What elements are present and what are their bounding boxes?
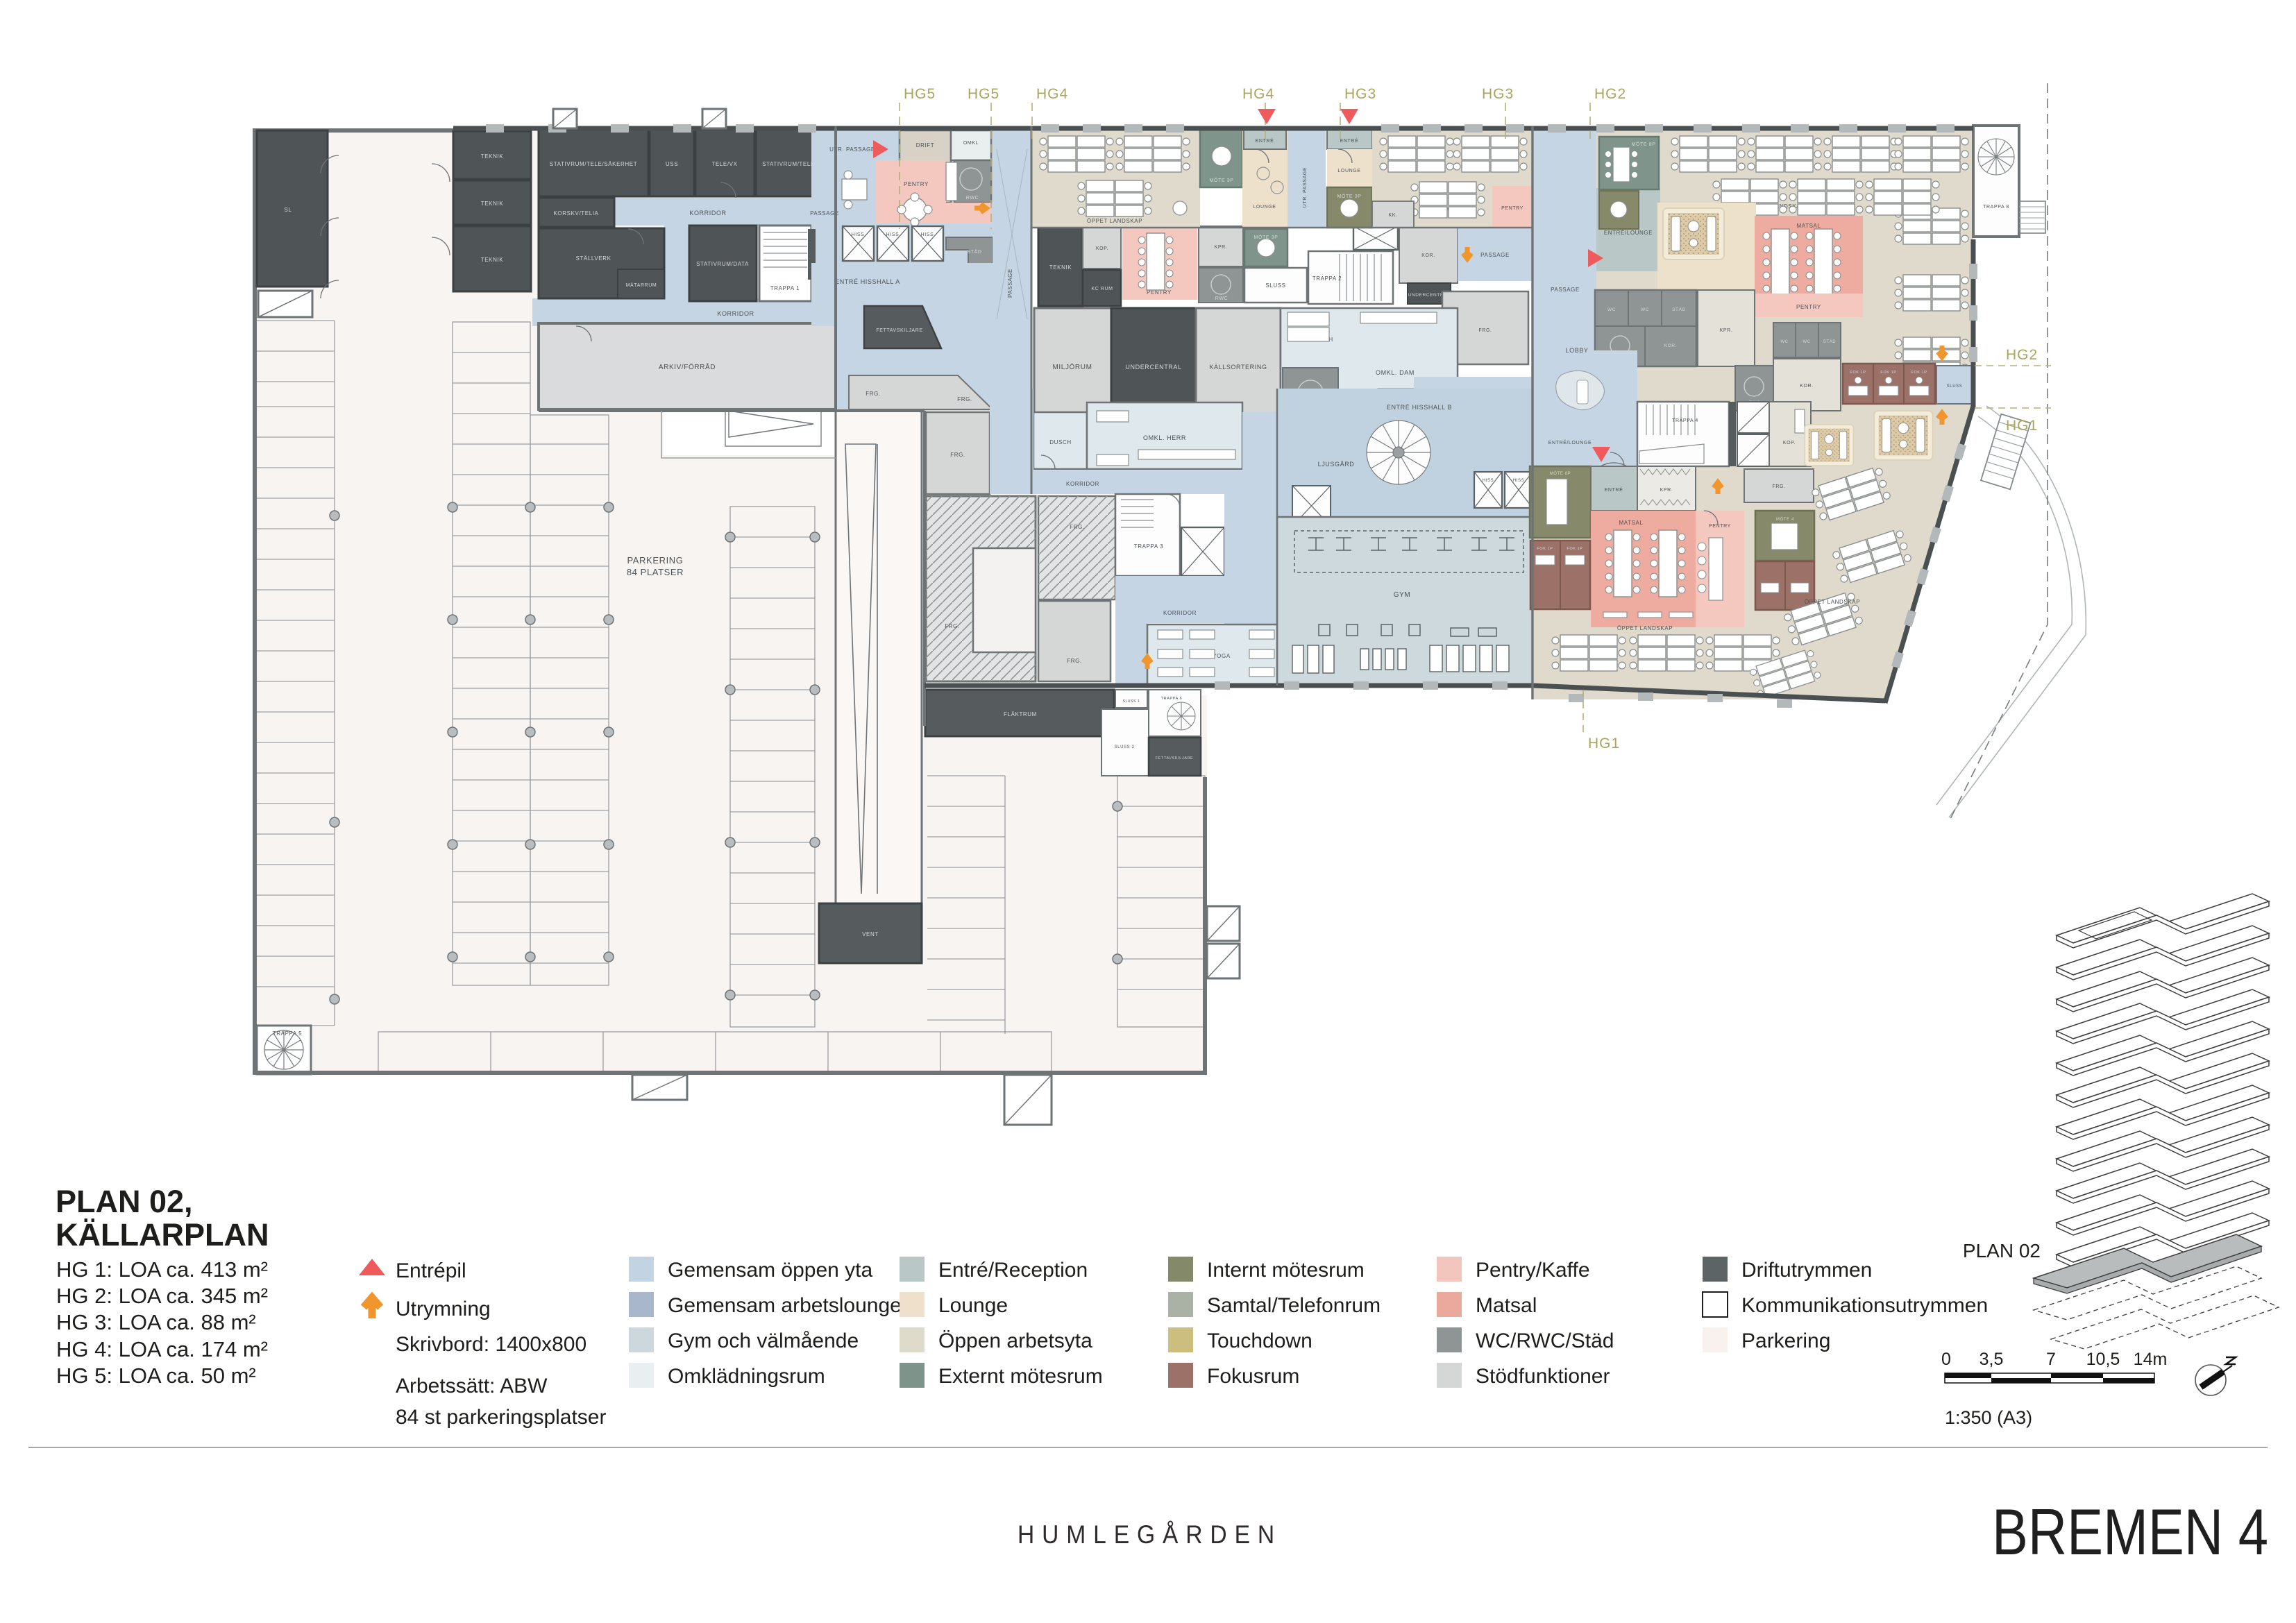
svg-text:OMKL. DAM: OMKL. DAM [1376, 369, 1415, 376]
svg-text:HG3: HG3 [1482, 86, 1514, 102]
svg-text:ENTRÉ HISSHALL B: ENTRÉ HISSHALL B [1387, 404, 1452, 411]
svg-text:USS: USS [666, 161, 678, 167]
svg-text:HISS: HISS [1513, 479, 1524, 483]
svg-text:Internt mötesrum: Internt mötesrum [1207, 1259, 1365, 1282]
svg-text:ENTRÉ/LOUNGE: ENTRÉ/LOUNGE [1548, 439, 1592, 445]
svg-text:KPR.: KPR. [1660, 488, 1673, 493]
svg-text:HG1: HG1 [1588, 736, 1620, 751]
svg-text:MÖTE 3P: MÖTE 3P [1337, 194, 1362, 199]
svg-text:OMKL. HERR: OMKL. HERR [1143, 434, 1186, 441]
svg-text:SLUSS: SLUSS [1265, 282, 1285, 289]
svg-text:ENTRÉ: ENTRÉ [1605, 486, 1623, 493]
svg-text:ENTRÉ HISSHALL A: ENTRÉ HISSHALL A [835, 278, 900, 285]
svg-text:TRAPPA 8: TRAPPA 8 [1983, 205, 2009, 210]
svg-text:TRAPPA 2: TRAPPA 2 [1312, 275, 1342, 282]
svg-text:FRG.: FRG. [866, 391, 881, 397]
svg-text:UTR. PASSAGE: UTR. PASSAGE [1303, 167, 1308, 207]
svg-text:WC: WC [1641, 307, 1649, 312]
svg-text:HG4: HG4 [1242, 86, 1274, 102]
svg-text:PARKERING: PARKERING [627, 555, 683, 566]
svg-text:1:350 (A3): 1:350 (A3) [1945, 1407, 2032, 1428]
svg-text:TRAPPA 6: TRAPPA 6 [1161, 697, 1183, 701]
svg-text:HISS: HISS [921, 232, 934, 237]
svg-text:MATSAL: MATSAL [1796, 223, 1821, 229]
svg-text:MILJÖRUM: MILJÖRUM [1052, 363, 1092, 371]
svg-text:HISS: HISS [1483, 479, 1494, 483]
svg-text:KORRIDOR: KORRIDOR [717, 310, 754, 317]
svg-text:Entré/Reception: Entré/Reception [938, 1259, 1088, 1282]
svg-text:TEKNIK: TEKNIK [1049, 264, 1072, 271]
svg-text:MÄTARRUM: MÄTARRUM [626, 282, 657, 288]
svg-text:FRG.: FRG. [957, 396, 972, 402]
svg-text:STÄD: STÄD [967, 249, 981, 255]
svg-text:KK.: KK. [1388, 213, 1397, 218]
svg-text:MÖTE 3P: MÖTE 3P [1254, 235, 1278, 240]
svg-text:STATIVRUM/DATA: STATIVRUM/DATA [696, 261, 749, 267]
svg-text:SLUSS: SLUSS [1947, 384, 1963, 389]
svg-text:PENTRY: PENTRY [1501, 206, 1523, 211]
svg-text:WC/RWC/Städ: WC/RWC/Städ [1476, 1329, 1614, 1352]
svg-text:HG5: HG5 [904, 86, 936, 102]
svg-text:PLAN 02: PLAN 02 [1963, 1240, 2041, 1261]
svg-text:YOGA: YOGA [1213, 653, 1231, 659]
svg-text:WC: WC [1803, 340, 1810, 344]
svg-text:MÖTE 4: MÖTE 4 [1776, 517, 1794, 522]
svg-text:KORRIDOR: KORRIDOR [1163, 610, 1197, 616]
svg-text:STATIVRUM/TELE: STATIVRUM/TELE [762, 161, 815, 167]
svg-text:VENT: VENT [862, 931, 879, 937]
svg-text:Pentry/Kaffe: Pentry/Kaffe [1476, 1259, 1590, 1282]
svg-text:HISS: HISS [886, 232, 900, 237]
svg-text:PASSAGE: PASSAGE [1007, 269, 1013, 298]
svg-text:Lounge: Lounge [938, 1294, 1008, 1317]
svg-text:10,5: 10,5 [2086, 1350, 2120, 1369]
svg-text:FRG.: FRG. [950, 452, 965, 458]
svg-text:84 st parkeringsplatser: 84 st parkeringsplatser [396, 1406, 607, 1429]
svg-text:FOK 1P: FOK 1P [1537, 547, 1553, 551]
svg-text:STATIVRUM/TELE/SÄKERHET: STATIVRUM/TELE/SÄKERHET [550, 161, 637, 167]
svg-text:TEKNIK: TEKNIK [481, 201, 504, 207]
svg-text:Stödfunktioner: Stödfunktioner [1476, 1365, 1610, 1388]
svg-text:Entrépil: Entrépil [396, 1259, 466, 1282]
svg-text:HG 4: LOA ca. 174 m²: HG 4: LOA ca. 174 m² [56, 1337, 268, 1361]
svg-text:WC: WC [1780, 340, 1788, 344]
svg-text:STÄD: STÄD [1823, 339, 1836, 344]
svg-text:KOR.: KOR. [1800, 384, 1814, 389]
svg-text:FOK 1P: FOK 1P [1880, 371, 1896, 375]
svg-text:Fokusrum: Fokusrum [1207, 1365, 1299, 1388]
svg-text:FLÄKTRUM: FLÄKTRUM [1004, 711, 1037, 717]
svg-text:HG4: HG4 [1036, 86, 1068, 102]
svg-text:Skrivbord: 1400x800: Skrivbord: 1400x800 [396, 1333, 586, 1356]
svg-text:HG 3: LOA ca. 88 m²: HG 3: LOA ca. 88 m² [56, 1310, 256, 1334]
svg-text:HG2: HG2 [1594, 86, 1626, 102]
svg-text:FETTAVSKILJARE: FETTAVSKILJARE [1156, 756, 1194, 760]
svg-text:LOUNGE: LOUNGE [1253, 205, 1276, 210]
svg-text:RWC: RWC [966, 196, 979, 201]
svg-text:PLAN 02,: PLAN 02, [56, 1184, 193, 1219]
svg-text:KOR.: KOR. [1421, 253, 1435, 258]
svg-text:WC: WC [1607, 307, 1616, 312]
svg-text:KPR.: KPR. [1720, 328, 1733, 333]
svg-text:TRAPPA 1: TRAPPA 1 [770, 285, 800, 291]
svg-text:LJUSGÅRD: LJUSGÅRD [1318, 461, 1355, 468]
svg-text:HUMLEGÅRDEN: HUMLEGÅRDEN [1018, 1520, 1282, 1549]
svg-text:MÖTE 3P: MÖTE 3P [1210, 178, 1234, 183]
svg-text:ÖPPET LANDSKAP: ÖPPET LANDSKAP [1617, 625, 1673, 631]
svg-text:FOK 1P: FOK 1P [1567, 547, 1582, 551]
svg-text:SLUSS 1: SLUSS 1 [1123, 699, 1140, 704]
svg-text:HG1: HG1 [2006, 418, 2038, 434]
svg-text:SLUSS 2: SLUSS 2 [1115, 745, 1135, 749]
svg-text:DRIFT: DRIFT [916, 142, 935, 148]
svg-text:HG5: HG5 [968, 86, 999, 102]
svg-text:3,5: 3,5 [1980, 1350, 2004, 1369]
svg-text:ÖPPET LANDSKAP: ÖPPET LANDSKAP [1805, 599, 1860, 605]
svg-text:FRG.: FRG. [1478, 328, 1492, 333]
svg-text:Matsal: Matsal [1476, 1294, 1537, 1317]
svg-text:84 PLATSER: 84 PLATSER [627, 567, 684, 577]
svg-text:FETTAVSKILJARE: FETTAVSKILJARE [876, 328, 922, 333]
svg-text:Gemensam arbetslounge: Gemensam arbetslounge [668, 1294, 902, 1317]
svg-text:Gym och välmående: Gym och välmående [668, 1329, 859, 1352]
svg-text:ARKIV/FÖRRÅD: ARKIV/FÖRRÅD [659, 362, 716, 371]
svg-text:MÖTE 8P: MÖTE 8P [1550, 471, 1571, 476]
svg-text:KC RUM: KC RUM [1091, 287, 1113, 291]
svg-text:Driftutrymmen: Driftutrymmen [1741, 1259, 1872, 1282]
svg-text:FRG.: FRG. [1070, 524, 1085, 530]
svg-text:7: 7 [2046, 1350, 2056, 1369]
svg-text:KORRIDOR: KORRIDOR [689, 210, 726, 216]
svg-text:KOP.: KOP. [1096, 246, 1108, 251]
svg-text:Utrymning: Utrymning [396, 1298, 491, 1320]
svg-text:BREMEN 4: BREMEN 4 [1992, 1495, 2268, 1568]
svg-text:KOP.: KOP. [1783, 441, 1796, 445]
svg-text:0: 0 [1941, 1350, 1951, 1369]
svg-text:14m: 14m [2134, 1350, 2168, 1369]
svg-text:FRG.: FRG. [945, 623, 960, 629]
svg-text:HG 2: LOA ca. 345 m²: HG 2: LOA ca. 345 m² [56, 1284, 268, 1308]
svg-text:KOR.: KOR. [1664, 343, 1677, 348]
svg-text:FRG.: FRG. [1772, 484, 1785, 489]
svg-text:ENTRÉ: ENTRÉ [1256, 137, 1274, 144]
svg-text:OMKL: OMKL [963, 141, 979, 146]
svg-text:Arbetssätt: ABW: Arbetssätt: ABW [396, 1375, 548, 1397]
svg-text:STÄLLVERK: STÄLLVERK [575, 255, 611, 262]
svg-text:Externt mötesrum: Externt mötesrum [938, 1365, 1103, 1388]
svg-text:ENTRÉ: ENTRÉ [1340, 137, 1359, 144]
svg-text:FOK 1P: FOK 1P [1850, 371, 1866, 375]
svg-text:TELE/VX: TELE/VX [711, 161, 737, 167]
svg-text:PENTRY: PENTRY [1796, 304, 1821, 310]
svg-text:KÄLLSORTERING: KÄLLSORTERING [1209, 364, 1267, 371]
svg-text:HG3: HG3 [1344, 86, 1376, 102]
svg-text:Omklädningsrum: Omklädningsrum [668, 1365, 825, 1388]
svg-text:KORSKV/TELIA: KORSKV/TELIA [554, 210, 599, 216]
svg-text:Öppen arbetsyta: Öppen arbetsyta [938, 1329, 1092, 1352]
svg-text:UNDERCENTRAL: UNDERCENTRAL [1125, 364, 1181, 371]
svg-text:FOK 1P: FOK 1P [1911, 371, 1927, 375]
svg-text:Gemensam öppen yta: Gemensam öppen yta [668, 1259, 872, 1282]
svg-text:Touchdown: Touchdown [1207, 1329, 1312, 1352]
svg-text:LOUNGE: LOUNGE [1337, 169, 1360, 173]
svg-text:PENTRY: PENTRY [904, 181, 929, 187]
svg-text:Kommunikationsutrymmen: Kommunikationsutrymmen [1741, 1294, 1988, 1317]
svg-text:TRAPPA 5: TRAPPA 5 [273, 1030, 302, 1037]
svg-text:KPR.: KPR. [1215, 245, 1228, 250]
svg-text:PASSAGE: PASSAGE [1480, 252, 1510, 258]
svg-text:HG2: HG2 [2006, 347, 2038, 363]
svg-text:KÄLLARPLAN: KÄLLARPLAN [56, 1217, 269, 1252]
svg-text:MÖTE 8P: MÖTE 8P [1632, 142, 1656, 147]
svg-text:PENTRY: PENTRY [1709, 524, 1731, 529]
svg-text:RWC: RWC [1215, 296, 1228, 301]
svg-text:TRAPPA 4: TRAPPA 4 [1672, 418, 1698, 423]
svg-text:FRG.: FRG. [1067, 658, 1082, 664]
svg-text:Samtal/Telefonrum: Samtal/Telefonrum [1207, 1294, 1381, 1317]
svg-text:PASSAGE: PASSAGE [1551, 287, 1580, 293]
svg-text:TRAPPA 3: TRAPPA 3 [1134, 543, 1163, 550]
svg-text:ENTRÉ/LOUNGE: ENTRÉ/LOUNGE [1604, 230, 1653, 236]
svg-text:TEKNIK: TEKNIK [481, 153, 504, 160]
svg-text:KORRIDOR: KORRIDOR [1066, 481, 1099, 487]
svg-text:HG 5: LOA ca. 50 m²: HG 5: LOA ca. 50 m² [56, 1363, 256, 1388]
svg-text:HISS: HISS [852, 232, 865, 237]
svg-text:HG 1: LOA ca. 413 m²: HG 1: LOA ca. 413 m² [56, 1257, 268, 1282]
svg-text:STÄD: STÄD [1672, 307, 1686, 312]
svg-text:TEKNIK: TEKNIK [481, 257, 504, 263]
svg-text:Parkering: Parkering [1741, 1329, 1830, 1352]
svg-text:MATSAL: MATSAL [1619, 520, 1643, 526]
svg-text:SL: SL [285, 207, 292, 213]
svg-text:LOBBY: LOBBY [1565, 347, 1588, 354]
svg-text:DUSCH: DUSCH [1049, 439, 1071, 445]
svg-text:ÖPPET LANDSKAP: ÖPPET LANDSKAP [1087, 218, 1142, 224]
svg-text:GYM: GYM [1394, 591, 1411, 599]
